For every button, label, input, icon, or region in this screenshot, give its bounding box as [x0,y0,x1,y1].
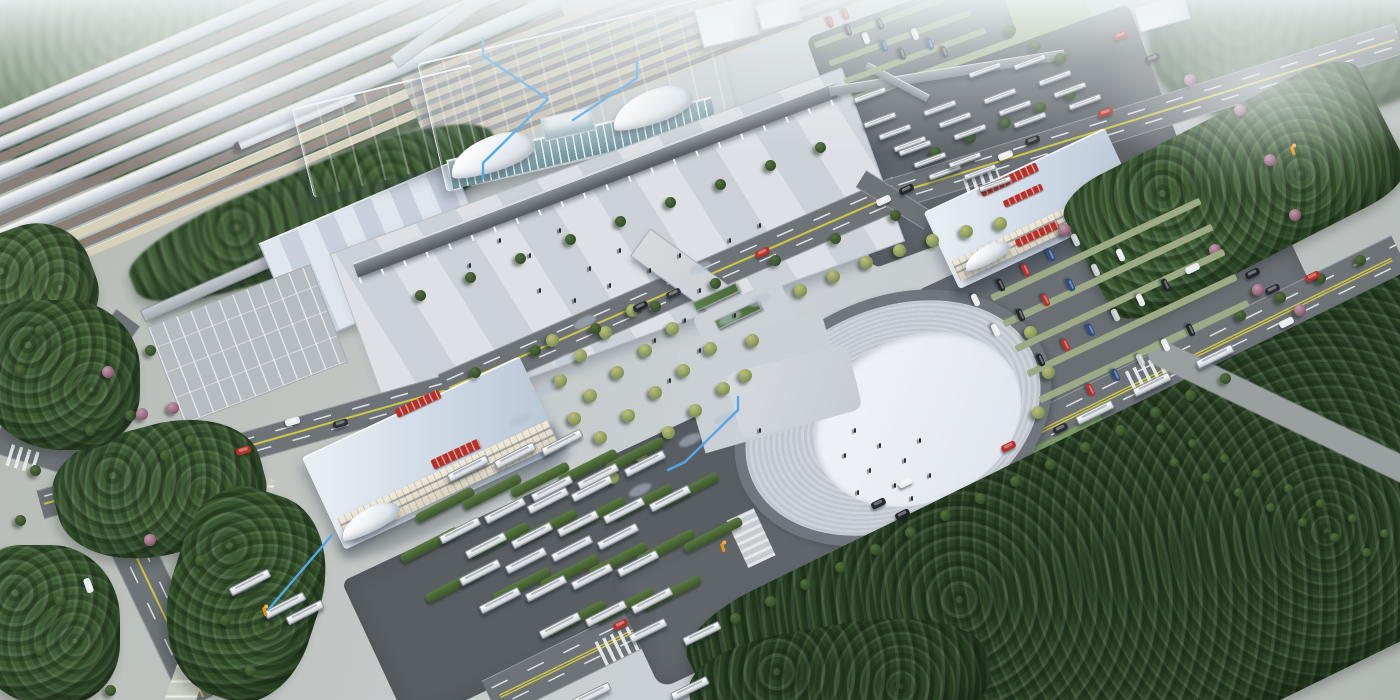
parked-car-east [1060,338,1071,352]
plaza-tree [717,382,730,395]
flowering-tree [144,534,156,546]
road-bus [670,675,710,700]
street-tree [1010,476,1021,487]
road-bus [1075,399,1115,425]
terminal-bus [483,496,526,524]
pedestrian [929,473,932,478]
parked-car-east [1085,323,1096,337]
street-tree [715,179,726,190]
road-car [235,445,251,456]
plaza-shrub [677,430,703,449]
plaza-tree [662,426,675,439]
parked-car-east [1085,383,1096,397]
pedestrian [699,348,702,353]
street-tree [1275,292,1286,303]
plaza-shrub [552,350,578,369]
aerial-render-scene [0,0,1400,700]
street-tree [55,595,66,606]
plaza-shrub [532,380,558,399]
plaza-tree [611,366,624,379]
pedestrian [619,248,622,253]
pedestrian [669,378,672,383]
avenue-tree [1220,454,1229,463]
street-tree [770,255,781,266]
depot-bus [998,99,1032,116]
depot-bus [923,99,957,116]
road-bus [572,681,612,700]
street-tree [835,562,846,573]
parked-car-east [1070,233,1081,247]
road-car [898,183,915,196]
parked-car-north [825,15,835,28]
road-car [1278,316,1295,329]
flowering-tree [1252,284,1264,296]
terminal-bus [228,568,271,596]
plaza-tree [1032,406,1045,419]
pedestrian [529,253,532,258]
pedestrian [869,468,872,473]
flowering-tree [1184,74,1196,86]
terminal-bus [458,558,501,586]
avenue-tree [1362,548,1371,557]
avenue-tree [1170,458,1179,467]
terminal-bus [438,516,481,544]
street-tree [15,365,26,376]
road-car [1144,52,1160,64]
pedestrian [699,288,702,293]
depot-bus [983,87,1017,104]
plaza-tree [622,409,635,422]
plaza-tree [677,364,690,377]
street-tree [815,142,826,153]
parked-car-north [840,7,850,20]
parked-car-north [861,31,871,44]
flowering-tree [1059,224,1071,236]
parked-car-east [1045,248,1056,262]
street-tree [940,510,951,521]
plaza-tree [584,389,597,402]
plaza-shrub [717,308,743,327]
pedestrian [844,453,847,458]
street-tree [765,160,776,171]
avenue-tree [1188,439,1197,448]
street-tree [185,435,196,446]
plaza-tree [594,431,607,444]
street-tree [1055,53,1066,64]
road-bus [1132,371,1172,397]
street-tree [565,234,576,245]
plaza-tree [746,334,759,347]
plaza-shrub [747,290,773,309]
street-tree [730,613,741,624]
avenue-tree [1348,514,1357,523]
road-bus [628,617,668,643]
street-tree [15,515,26,526]
avenue-tree [1380,529,1389,538]
street-tree [1115,425,1126,436]
pedestrian [499,238,502,243]
avenue-tree [1266,503,1275,512]
plaza-tree [960,225,973,238]
street-tree [665,197,676,208]
depot-bus [1013,53,1047,70]
pedestrian [759,223,762,228]
plaza-tree [546,334,559,347]
plaza-shrub [712,408,738,427]
street-tree [220,615,231,626]
avenue-tree [1252,469,1261,478]
parked-car-east [1115,248,1126,262]
street-tree [85,425,96,436]
road-car [1024,134,1041,146]
road-car [997,149,1014,161]
depot-bus [948,151,982,168]
street-tree [530,345,541,356]
street-tree [1000,117,1011,128]
parked-car-east [995,278,1006,292]
pedestrian [684,318,687,323]
street-tree [650,301,661,312]
street-tree [1045,459,1056,470]
street-tree [905,527,916,538]
pedestrian [879,443,882,448]
street-tree [890,210,901,221]
plaza-tree [639,344,652,357]
road-car [612,618,629,631]
street-tree [1355,255,1366,266]
avenue-tree [1156,424,1165,433]
plaza-tree [860,256,873,269]
plaza-tree [893,244,906,257]
parked-car-east [1135,293,1146,307]
street-tree [145,345,156,356]
pedestrian [639,308,642,313]
plaza-tree [794,284,807,297]
street-tree [30,465,41,476]
terminal-bus [540,428,583,456]
terminal-bus [538,611,581,639]
flowering-tree [1264,154,1276,166]
street-tree [1220,373,1231,384]
street-tree [515,253,526,264]
avenue-tree [1316,499,1325,508]
pedestrian [734,313,737,318]
pedestrian [559,228,562,233]
flowering-tree [1289,209,1301,221]
pedestrian [854,428,857,433]
pedestrian [609,283,612,288]
parked-car-east [1110,308,1121,322]
plaza-tree [827,270,840,283]
flowering-tree [1234,104,1246,116]
plaza-tree [994,217,1007,230]
plaza-tree [568,412,581,425]
pedestrian [574,298,577,303]
street-tree [125,410,136,421]
street-tree [1150,407,1161,418]
road-car [1112,29,1128,41]
parked-car-east [970,293,981,307]
road-car [1184,262,1201,275]
pedestrian [894,483,897,488]
road-car [894,508,911,521]
street-tree [35,325,46,336]
road-car [870,497,887,510]
street-tree [470,367,481,378]
road-car [1000,440,1017,453]
road-car [754,246,771,259]
sprite-layer [0,0,1400,700]
plaza-tree [926,234,939,247]
pedestrian [654,338,657,343]
plaza-shrub [507,410,533,429]
avenue-tree [1284,484,1293,493]
plaza-tree [704,342,717,355]
road-car [897,476,914,489]
plaza-tree [739,369,752,382]
terminal-bus [446,454,489,482]
depot-bus [963,163,997,180]
street-tree [105,685,116,696]
street-tree [710,278,721,289]
flowering-tree [102,366,114,378]
plaza-shrub [687,258,713,277]
road-bus [682,620,722,646]
parked-car-east [1020,263,1031,277]
avenue-tree [1234,488,1243,497]
depot-bus [978,175,1012,192]
road-car [1052,422,1069,435]
street-tree [195,555,206,566]
street-tree [975,493,986,504]
street-tree [160,450,171,461]
road-car [284,416,300,427]
street-tree [1030,40,1041,51]
road-car [1244,267,1261,280]
street-tree [35,645,46,656]
parked-car-east [1090,263,1101,277]
pedestrian [729,238,732,243]
pedestrian [539,288,542,293]
street-tree [830,233,841,244]
pedestrian [759,428,762,433]
street-tree [615,216,626,227]
flowering-tree [1294,304,1306,316]
avenue-tree [1298,518,1307,527]
depot-bus [878,123,912,140]
plaza-tree [649,386,662,399]
street-tree [1005,25,1016,36]
plaza-tree [666,322,679,335]
terminal-bus [493,441,536,469]
road-car [1097,106,1113,118]
pedestrian [919,438,922,443]
road-bus [1195,343,1235,369]
avenue-tree [1330,533,1339,542]
pedestrian [649,268,652,273]
street-tree [465,272,476,283]
street-tree [415,290,426,301]
parked-car-east [1110,368,1121,382]
depot-bus [968,61,1002,78]
plaza-tree [689,404,702,417]
pedestrian [904,458,907,463]
flowering-tree [167,402,179,414]
pedestrian [679,253,682,258]
pedestrian [469,263,472,268]
road-car [82,577,94,593]
avenue-tree [1202,473,1211,482]
depot-bus [853,86,887,103]
depot-bus [863,111,897,128]
street-tree [1080,442,1091,453]
depot-bus [938,111,972,128]
road-car [875,194,892,207]
street-tree [245,665,256,676]
street-tree [1185,390,1196,401]
pedestrian [589,266,592,271]
pedestrian [857,490,860,495]
pedestrian [911,496,914,501]
road-car [665,287,682,300]
road-car [332,418,348,429]
depot-bus [1038,69,1072,86]
depot-bus [1013,111,1047,128]
flowering-tree [136,408,148,420]
street-tree [800,579,811,590]
street-tree [870,544,881,555]
parked-car-east [990,323,1001,337]
street-tree [765,596,776,607]
